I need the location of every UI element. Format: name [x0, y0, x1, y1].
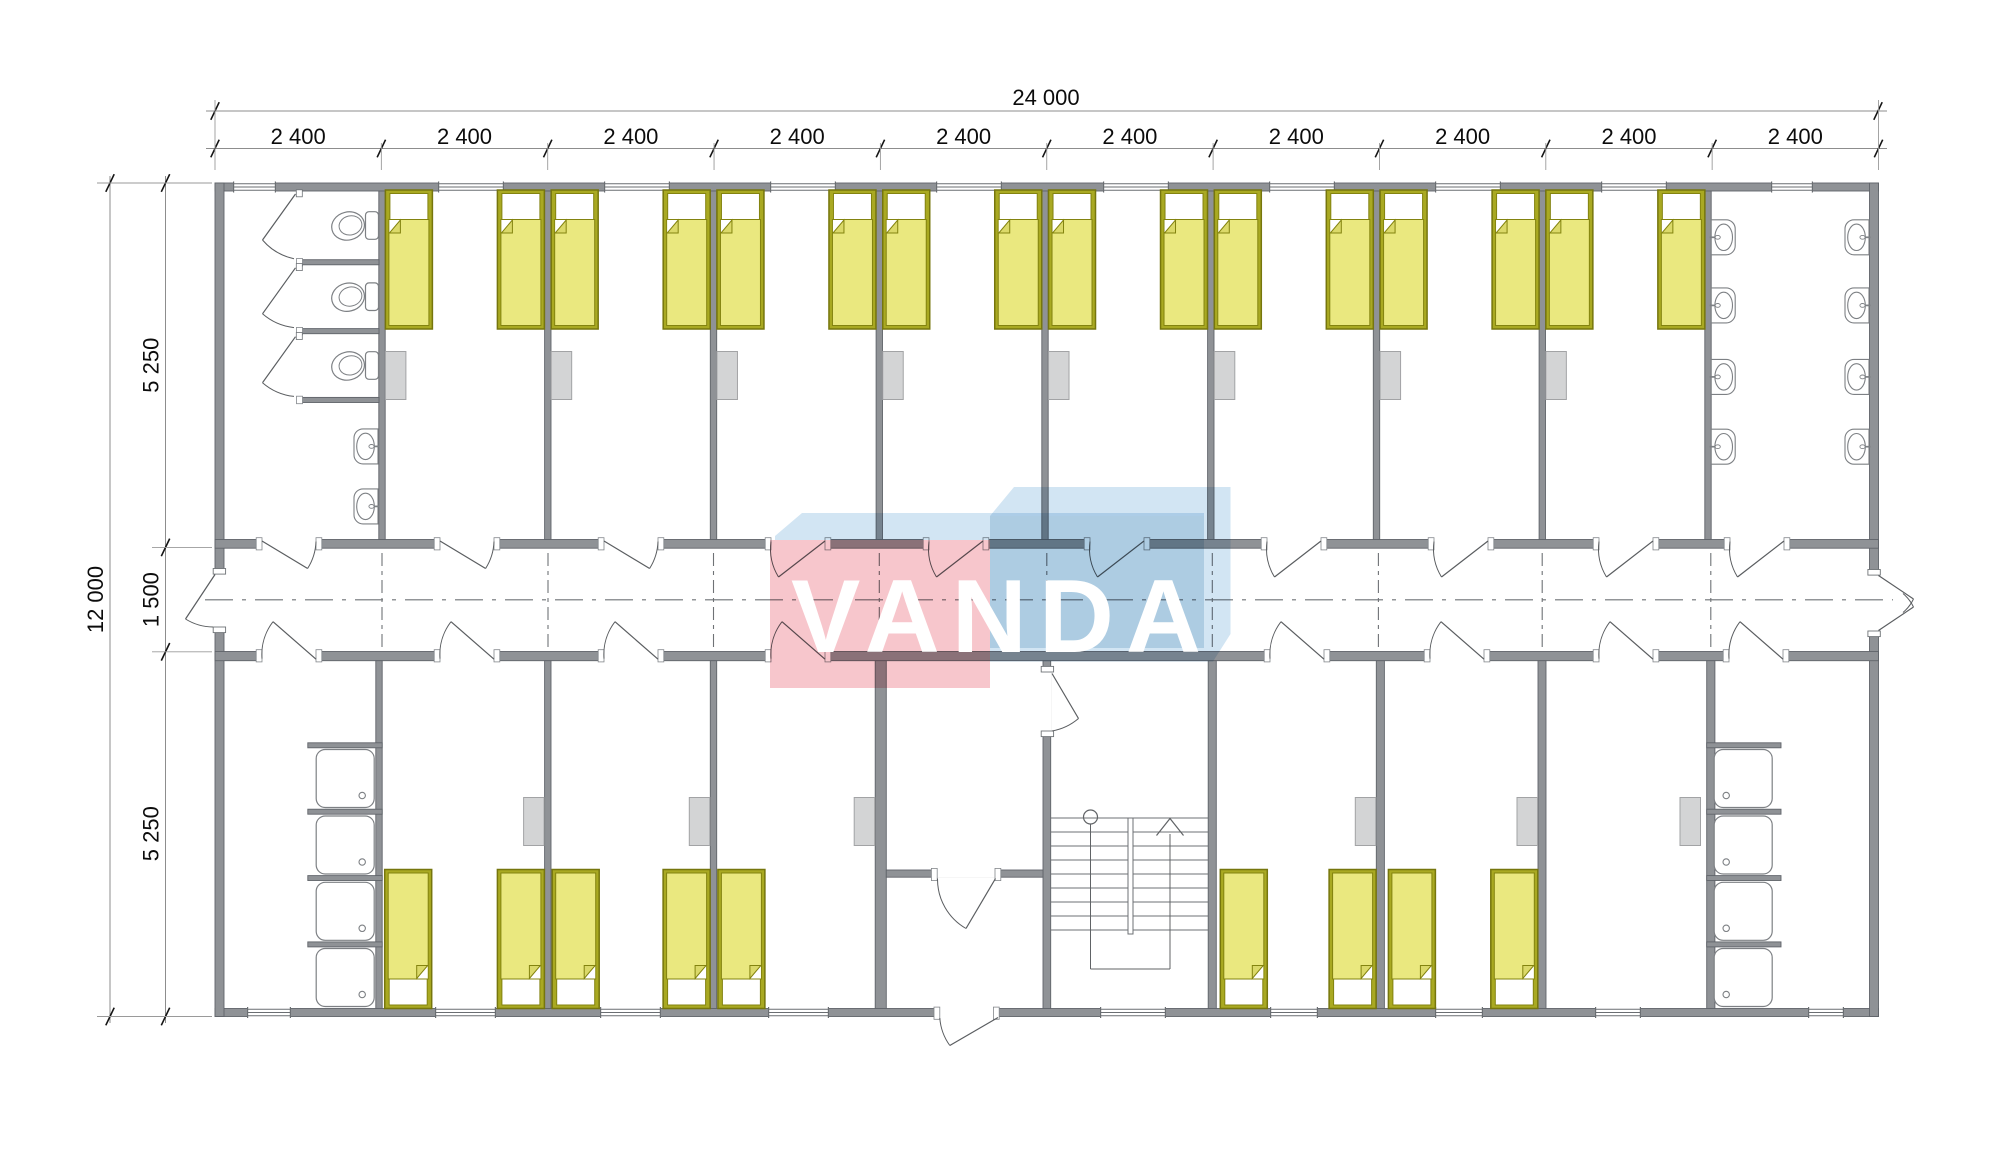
- svg-text:5 250: 5 250: [139, 338, 164, 393]
- svg-text:1 500: 1 500: [139, 572, 164, 627]
- svg-text:2 400: 2 400: [603, 124, 658, 149]
- svg-text:2 400: 2 400: [1768, 124, 1823, 149]
- svg-text:2 400: 2 400: [1601, 124, 1656, 149]
- svg-text:2 400: 2 400: [770, 124, 825, 149]
- svg-text:VANDA: VANDA: [791, 559, 1213, 675]
- svg-text:12 000: 12 000: [83, 566, 108, 633]
- svg-text:2 400: 2 400: [1269, 124, 1324, 149]
- svg-text:2 400: 2 400: [271, 124, 326, 149]
- svg-text:2 400: 2 400: [1435, 124, 1490, 149]
- svg-text:2 400: 2 400: [437, 124, 492, 149]
- svg-text:5 250: 5 250: [139, 806, 164, 861]
- svg-text:2 400: 2 400: [936, 124, 991, 149]
- svg-text:24 000: 24 000: [1012, 85, 1079, 110]
- svg-text:2 400: 2 400: [1102, 124, 1157, 149]
